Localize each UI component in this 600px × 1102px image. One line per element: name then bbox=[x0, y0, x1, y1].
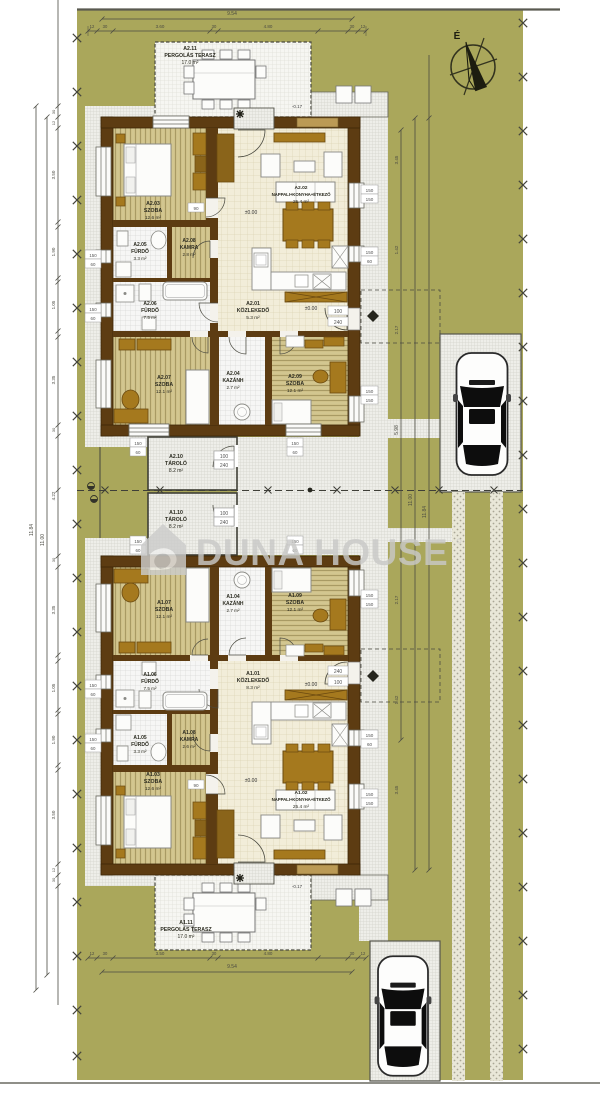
svg-text:11.00: 11.00 bbox=[40, 534, 46, 546]
svg-text:150: 150 bbox=[134, 441, 142, 446]
svg-text:4.22: 4.22 bbox=[51, 491, 56, 500]
svg-text:90: 90 bbox=[193, 783, 199, 788]
svg-text:100: 100 bbox=[220, 454, 229, 460]
svg-text:1.42: 1.42 bbox=[394, 695, 399, 704]
svg-text:3.3 m²: 3.3 m² bbox=[133, 256, 146, 261]
svg-text:±0.00: ±0.00 bbox=[245, 210, 258, 216]
svg-text:-0.17: -0.17 bbox=[292, 884, 303, 889]
svg-text:9.54: 9.54 bbox=[227, 964, 237, 970]
svg-text:A2.03: A2.03 bbox=[146, 201, 160, 207]
svg-text:60: 60 bbox=[367, 742, 373, 747]
svg-text:150: 150 bbox=[366, 792, 374, 797]
svg-text:30: 30 bbox=[350, 951, 355, 956]
svg-text:150: 150 bbox=[366, 398, 374, 403]
svg-text:A1.07: A1.07 bbox=[157, 600, 171, 606]
svg-text:12.1 m²: 12.1 m² bbox=[156, 389, 173, 395]
svg-text:25.4 m²: 25.4 m² bbox=[293, 199, 310, 205]
svg-text:12: 12 bbox=[361, 951, 366, 956]
svg-text:NAPPALI+KONYHA+ÉTKEZŐ: NAPPALI+KONYHA+ÉTKEZŐ bbox=[272, 192, 331, 197]
svg-text:30: 30 bbox=[103, 24, 108, 29]
svg-text:150: 150 bbox=[366, 389, 374, 394]
svg-text:150: 150 bbox=[366, 733, 374, 738]
svg-text:3.3 m²: 3.3 m² bbox=[133, 749, 146, 754]
svg-text:SZOBA: SZOBA bbox=[144, 208, 162, 214]
svg-text:240: 240 bbox=[334, 669, 343, 675]
svg-text:A1.02: A1.02 bbox=[294, 790, 307, 796]
svg-text:A2.05: A2.05 bbox=[133, 242, 147, 248]
svg-text:-0.17: -0.17 bbox=[292, 104, 303, 109]
svg-text:A2.11: A2.11 bbox=[183, 46, 197, 52]
svg-text:2.7 m²: 2.7 m² bbox=[226, 385, 239, 390]
svg-text:A2.06: A2.06 bbox=[143, 301, 157, 307]
svg-text:12: 12 bbox=[90, 24, 95, 29]
svg-text:30: 30 bbox=[212, 24, 217, 29]
svg-text:PERGOLÁS TERASZ: PERGOLÁS TERASZ bbox=[164, 52, 216, 59]
svg-text:FÜRDŐ: FÜRDŐ bbox=[141, 307, 159, 314]
svg-text:150: 150 bbox=[89, 737, 97, 742]
svg-text:7.5 m²: 7.5 m² bbox=[143, 686, 156, 691]
svg-text:SZOBA: SZOBA bbox=[144, 779, 162, 785]
svg-text:12.1 m²: 12.1 m² bbox=[156, 614, 173, 620]
svg-text:1.05: 1.05 bbox=[51, 300, 56, 309]
svg-text:30: 30 bbox=[51, 877, 56, 882]
svg-text:É: É bbox=[454, 29, 461, 42]
svg-text:2.17: 2.17 bbox=[394, 325, 399, 334]
svg-text:60: 60 bbox=[91, 692, 96, 697]
svg-text:11.00: 11.00 bbox=[408, 494, 414, 506]
svg-text:240: 240 bbox=[334, 320, 343, 326]
svg-text:TÁROLÓ: TÁROLÓ bbox=[165, 459, 187, 467]
svg-text:60: 60 bbox=[293, 450, 298, 455]
svg-text:A1.09: A1.09 bbox=[288, 593, 302, 599]
svg-text:A1.08: A1.08 bbox=[182, 730, 196, 736]
svg-text:150: 150 bbox=[366, 197, 374, 202]
svg-text:150: 150 bbox=[89, 683, 97, 688]
svg-text:4.80: 4.80 bbox=[264, 24, 273, 29]
svg-text:150: 150 bbox=[366, 188, 374, 193]
svg-text:SZOBA: SZOBA bbox=[286, 600, 304, 606]
svg-text:PERGOLÁS TERASZ: PERGOLÁS TERASZ bbox=[160, 926, 212, 933]
svg-text:240: 240 bbox=[220, 463, 229, 469]
svg-text:3.50: 3.50 bbox=[51, 170, 56, 179]
svg-text:30: 30 bbox=[51, 427, 56, 432]
svg-text:12: 12 bbox=[51, 120, 56, 125]
svg-text:60: 60 bbox=[91, 262, 96, 267]
svg-text:2.6 m²: 2.6 m² bbox=[182, 744, 195, 749]
svg-text:KAZÁNH: KAZÁNH bbox=[222, 377, 243, 384]
svg-text:NAPPALI+KONYHA+ÉTKEZŐ: NAPPALI+KONYHA+ÉTKEZŐ bbox=[272, 797, 331, 802]
svg-text:A2.09: A2.09 bbox=[288, 374, 302, 380]
svg-text:30: 30 bbox=[51, 109, 56, 114]
svg-text:12.1 m²: 12.1 m² bbox=[287, 388, 304, 394]
svg-text:A2.08: A2.08 bbox=[182, 238, 196, 244]
svg-text:3.35: 3.35 bbox=[51, 375, 56, 384]
svg-text:1.05: 1.05 bbox=[51, 683, 56, 692]
svg-text:3.50: 3.50 bbox=[156, 951, 165, 956]
svg-text:3.50: 3.50 bbox=[51, 810, 56, 819]
svg-text:60: 60 bbox=[367, 259, 373, 264]
svg-text:SZOBA: SZOBA bbox=[155, 607, 173, 613]
svg-text:8.2 m²: 8.2 m² bbox=[169, 468, 184, 474]
svg-text:9.54: 9.54 bbox=[227, 11, 237, 17]
svg-text:A2.07: A2.07 bbox=[157, 375, 171, 381]
svg-text:1.90: 1.90 bbox=[51, 735, 56, 744]
svg-text:150: 150 bbox=[134, 539, 142, 544]
svg-text:5.98: 5.98 bbox=[394, 425, 400, 435]
svg-text:7.5 m²: 7.5 m² bbox=[143, 315, 156, 320]
svg-text:TÁROLÓ: TÁROLÓ bbox=[165, 515, 187, 523]
svg-text:SZOBA: SZOBA bbox=[155, 382, 173, 388]
svg-text:A1.06: A1.06 bbox=[143, 672, 157, 678]
svg-text:240: 240 bbox=[220, 520, 229, 526]
svg-text:8.2 m²: 8.2 m² bbox=[169, 524, 184, 530]
svg-text:30: 30 bbox=[212, 951, 217, 956]
svg-text:100: 100 bbox=[220, 511, 229, 517]
svg-text:11.84: 11.84 bbox=[29, 524, 35, 536]
svg-text:30: 30 bbox=[51, 557, 56, 562]
svg-text:KÖZLEKEDŐ: KÖZLEKEDŐ bbox=[237, 677, 270, 684]
svg-text:90: 90 bbox=[193, 206, 199, 211]
svg-text:12.1 m²: 12.1 m² bbox=[287, 607, 304, 613]
svg-text:KAZÁNH: KAZÁNH bbox=[222, 600, 243, 607]
svg-text:1.42: 1.42 bbox=[394, 245, 399, 254]
svg-text:A1.10: A1.10 bbox=[169, 510, 183, 516]
svg-text:150: 150 bbox=[89, 253, 97, 258]
svg-text:3.45: 3.45 bbox=[394, 785, 399, 794]
svg-text:DUNA HOUSE: DUNA HOUSE bbox=[196, 532, 448, 573]
svg-text:150: 150 bbox=[366, 602, 374, 607]
svg-text:KAMRA: KAMRA bbox=[180, 245, 199, 251]
svg-text:2.17: 2.17 bbox=[394, 595, 399, 604]
svg-text:25.4 m²: 25.4 m² bbox=[293, 804, 310, 810]
svg-text:2.7 m²: 2.7 m² bbox=[226, 608, 239, 613]
svg-text:A2.04: A2.04 bbox=[226, 371, 240, 377]
svg-text:A2.01: A2.01 bbox=[246, 301, 260, 307]
svg-text:12: 12 bbox=[361, 24, 366, 29]
svg-text:60: 60 bbox=[136, 450, 141, 455]
svg-text:2.8 m²: 2.8 m² bbox=[182, 252, 195, 257]
svg-text:A2.10: A2.10 bbox=[169, 454, 183, 460]
svg-text:KÖZLEKEDŐ: KÖZLEKEDŐ bbox=[237, 307, 270, 314]
svg-text:3.45: 3.45 bbox=[394, 155, 399, 164]
svg-text:12.6 m²: 12.6 m² bbox=[145, 215, 162, 221]
svg-text:11.84: 11.84 bbox=[422, 506, 428, 518]
svg-text:12.6 m²: 12.6 m² bbox=[145, 786, 162, 792]
svg-text:60: 60 bbox=[91, 746, 96, 751]
svg-text:30: 30 bbox=[103, 951, 108, 956]
svg-text:60: 60 bbox=[91, 316, 96, 321]
svg-text:FÜRDŐ: FÜRDŐ bbox=[141, 678, 159, 685]
svg-text:100: 100 bbox=[334, 680, 343, 686]
svg-text:17.0 m²: 17.0 m² bbox=[182, 60, 199, 66]
svg-text:A2.02: A2.02 bbox=[294, 185, 307, 191]
svg-text:FÜRDŐ: FÜRDŐ bbox=[131, 741, 149, 748]
svg-text:12: 12 bbox=[90, 951, 95, 956]
svg-text:100: 100 bbox=[334, 309, 343, 315]
svg-text:±0.00: ±0.00 bbox=[305, 306, 318, 312]
svg-text:5.3 m²: 5.3 m² bbox=[246, 315, 260, 321]
svg-text:4.80: 4.80 bbox=[264, 951, 273, 956]
svg-text:A1.03: A1.03 bbox=[146, 772, 160, 778]
svg-text:3.60: 3.60 bbox=[156, 24, 165, 29]
svg-text:150: 150 bbox=[366, 250, 374, 255]
svg-text:150: 150 bbox=[89, 307, 97, 312]
svg-text:KAMRA: KAMRA bbox=[180, 737, 199, 743]
svg-text:A1.11: A1.11 bbox=[179, 920, 193, 926]
svg-text:SZOBA: SZOBA bbox=[286, 381, 304, 387]
svg-text:150: 150 bbox=[291, 441, 299, 446]
svg-text:FÜRDŐ: FÜRDŐ bbox=[131, 248, 149, 255]
svg-text:12: 12 bbox=[51, 867, 56, 872]
svg-text:±0.00: ±0.00 bbox=[245, 778, 258, 784]
svg-text:30: 30 bbox=[350, 24, 355, 29]
svg-text:8.3 m²: 8.3 m² bbox=[246, 685, 260, 691]
svg-text:A1.04: A1.04 bbox=[226, 594, 240, 600]
svg-text:150: 150 bbox=[366, 593, 374, 598]
svg-text:1.90: 1.90 bbox=[51, 247, 56, 256]
svg-text:A1.05: A1.05 bbox=[133, 735, 147, 741]
svg-text:3.35: 3.35 bbox=[51, 605, 56, 614]
svg-text:60: 60 bbox=[136, 548, 141, 553]
svg-text:±0.00: ±0.00 bbox=[305, 682, 318, 688]
svg-text:A1.01: A1.01 bbox=[246, 671, 260, 677]
svg-text:150: 150 bbox=[366, 801, 374, 806]
svg-text:17.0 m²: 17.0 m² bbox=[178, 934, 195, 940]
